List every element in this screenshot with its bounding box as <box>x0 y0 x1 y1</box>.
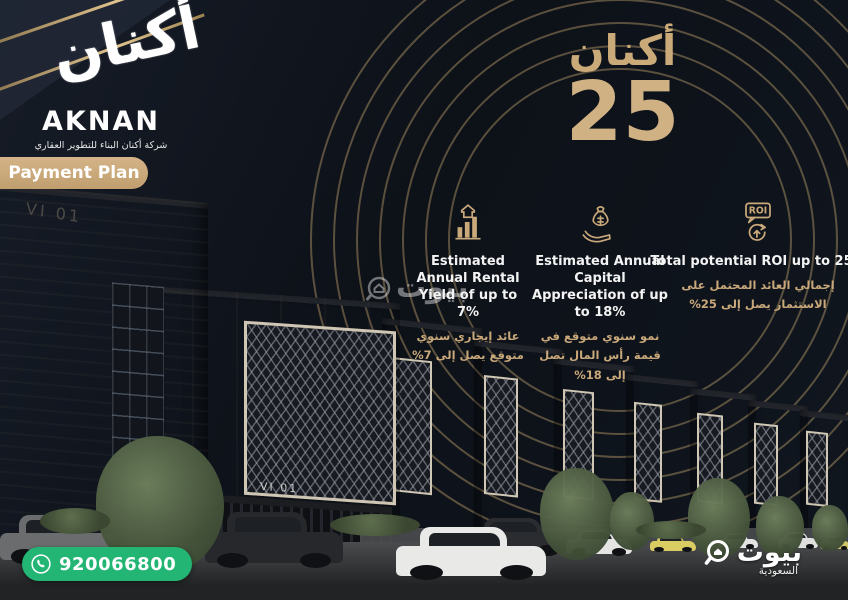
tree <box>610 492 654 550</box>
phone-number: 920066800 <box>59 554 176 575</box>
bayut-house-magnifier-icon <box>702 538 732 568</box>
payment-plan-badge[interactable]: Payment Plan <box>0 157 148 189</box>
roi-icon: ROI <box>734 198 782 248</box>
tree <box>540 468 614 560</box>
feature-text-ar: إجمالي العائد المحتمل على الاستثمار يصل … <box>672 276 844 315</box>
feature-text-en: Estimated Annual Rental Yield of up to 7… <box>408 254 528 322</box>
feature-list: Estimated Annual Rental Yield of up to 7… <box>408 198 844 385</box>
feature-total-roi: ROI Total potential ROI up to 25% إجمالي… <box>672 198 844 385</box>
publisher-name: بيوت <box>737 537 802 568</box>
unit-label-entrance: VI 01 <box>260 480 298 496</box>
white-coupe <box>396 524 546 580</box>
feature-text-en: Total potential ROI up to 25% <box>650 254 848 271</box>
bush <box>40 508 110 534</box>
project-title-block: أكنان 25 <box>540 26 705 148</box>
brand-name: AKNAN <box>36 106 166 137</box>
feature-text-ar: نمو سنوي متوقع في قيمة رأس المال تصل إلى… <box>528 327 672 386</box>
poster: VI 01 VI 01 <box>0 0 848 600</box>
project-number: 25 <box>540 78 705 148</box>
watermark-house-icon <box>366 275 392 301</box>
feature-text-ar: عائد إيجاري سنوي متوقع يصل إلى 7% <box>408 327 528 366</box>
bush <box>636 521 706 539</box>
brand-tagline: شركة أكنان البناء للتطوير العقاري <box>18 140 184 151</box>
publisher-logo: بيوت السعودية <box>702 537 802 577</box>
tree <box>812 505 848 551</box>
capital-appreciation-hand-icon <box>577 198 623 248</box>
rental-yield-chart-icon <box>445 198 491 248</box>
roi-box-label: ROI <box>749 206 767 217</box>
lattice-screen <box>244 321 396 506</box>
feature-rental-yield: Estimated Annual Rental Yield of up to 7… <box>408 198 528 385</box>
feature-capital-appreciation: Estimated Annual Capital Appreciation of… <box>528 198 672 385</box>
publisher-country: السعودية <box>759 565 798 577</box>
phone-icon <box>30 553 52 575</box>
parked-dark-suv <box>205 508 343 568</box>
phone-contact-badge[interactable]: 920066800 <box>22 547 192 581</box>
bush <box>330 514 420 536</box>
